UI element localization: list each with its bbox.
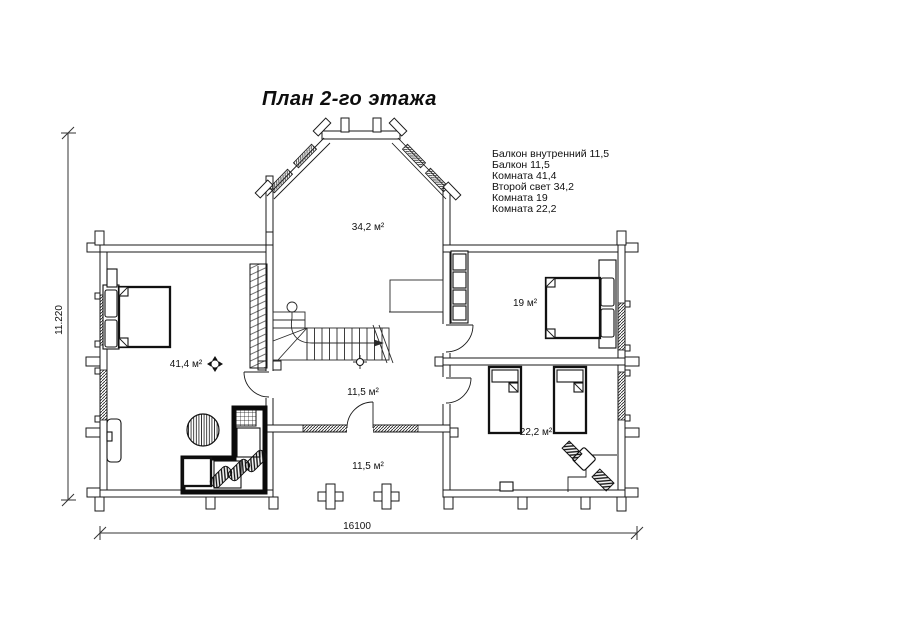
chimney-stub-bottom [500,482,513,491]
room-label-inner-balcony: 11,5 м² [347,387,379,398]
desk-corner [562,441,617,492]
dimension-horizontal: 16100 [94,521,643,540]
bed-single-b [554,367,586,433]
ceiling-light-icon-small [353,355,367,369]
balcony-posts [318,484,399,509]
floor-plan-page: 11.220 16100 План 2-го этажа Балкон внут… [0,0,900,636]
room-label-second-light: 34,2 м² [352,222,385,233]
room-labels: 34,2 м² 19 м² 41,4 м² 11,5 м² 22,2 м² 11… [170,222,553,472]
room-label-bedroom-22: 22,2 м² [520,427,553,438]
ceiling-light-icon [207,356,223,372]
radiator [107,419,121,462]
page-title: План 2-го этажа [262,88,437,110]
dimension-horizontal-label: 16100 [343,521,371,532]
legend-item: Комната 22,2 [492,203,557,215]
shelf-unit [451,251,468,323]
legend: Балкон внутренний 11,5 Балкон 11,5 Комна… [492,148,609,215]
room-label-bedroom-41: 41,4 м² [170,359,203,370]
chimney-stub-top [107,269,117,287]
round-rug [187,414,219,446]
bed-single-a [489,367,521,433]
dimension-vertical: 11.220 [54,127,76,506]
doors [244,324,473,433]
room-label-bedroom-19: 19 м² [513,298,538,309]
staircase [273,280,443,363]
bed-double-right [546,260,616,348]
room-label-balcony: 11,5 м² [352,461,384,472]
floor-plan-canvas: 11.220 16100 План 2-го этажа Балкон внут… [0,0,900,636]
bed-double-left [103,285,170,349]
dimension-vertical-label: 11.220 [54,305,65,335]
bay-window [255,118,461,200]
wardrobe [250,264,267,368]
